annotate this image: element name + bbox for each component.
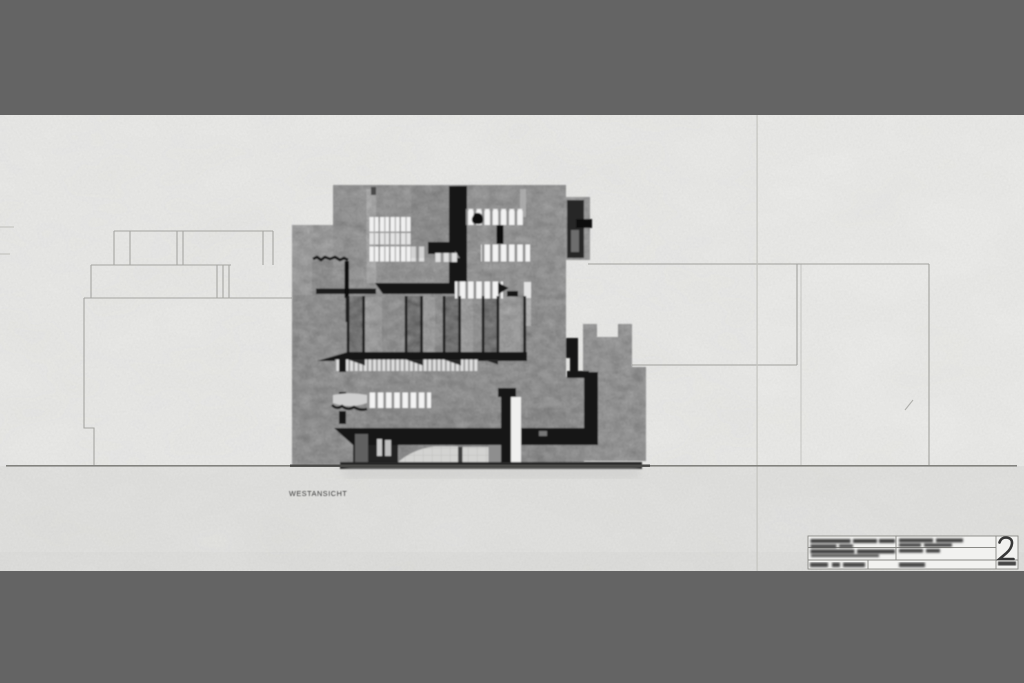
svg-text:WESTANSICHT: WESTANSICHT: [289, 489, 347, 498]
